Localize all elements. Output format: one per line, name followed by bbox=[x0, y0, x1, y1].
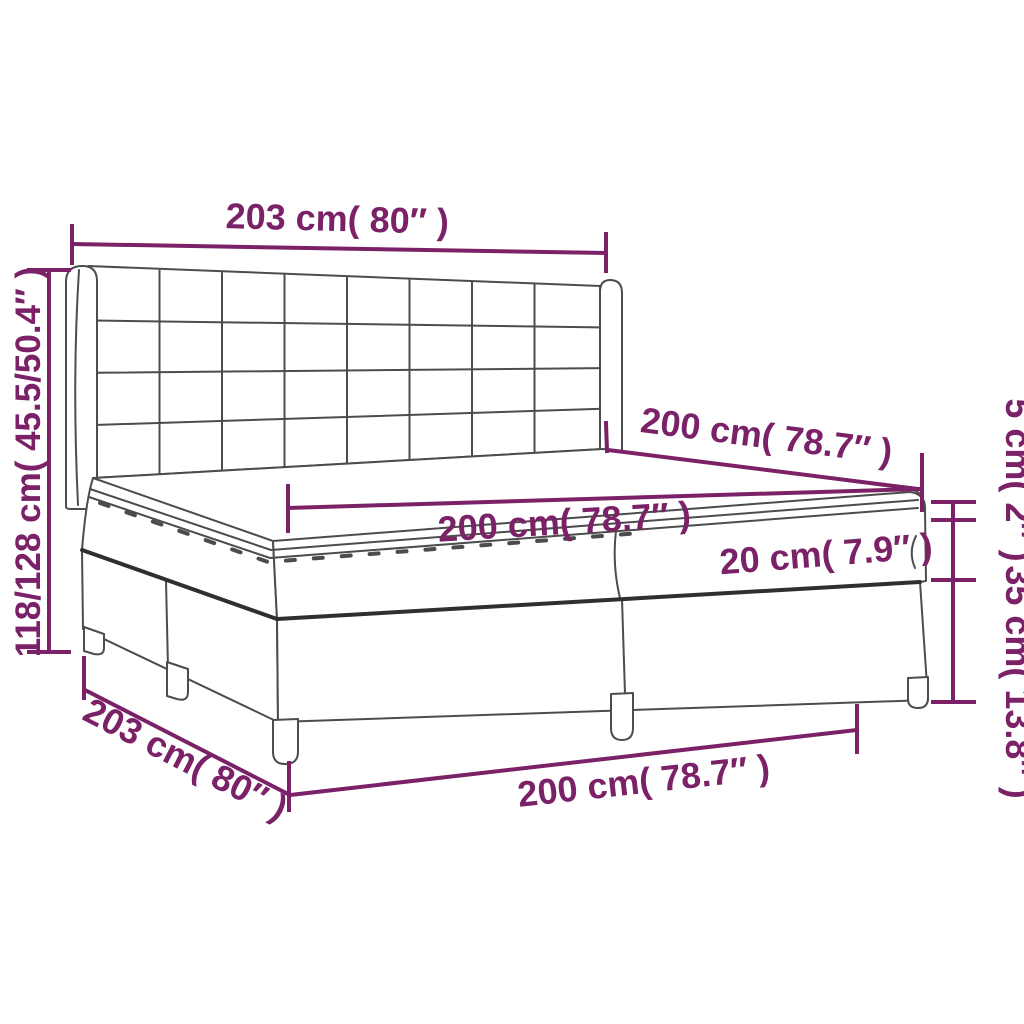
dim-right-bracket bbox=[933, 502, 974, 702]
headboard-left-pillar bbox=[66, 266, 97, 509]
dimension-diagram: 203 cm( 80″ ) 118/128 cm( 45.5/50.4″ ) 2… bbox=[0, 0, 1024, 1024]
label-headboard-width: 203 cm( 80″ ) bbox=[225, 195, 449, 242]
leg-front-left bbox=[273, 719, 298, 764]
label-overall-height: 118/128 cm( 45.5/50.4″ ) bbox=[9, 267, 48, 657]
leg-mid-left bbox=[167, 662, 188, 700]
label-frame-width: 200 cm( 78.7″ ) bbox=[515, 746, 771, 815]
label-topper-height: 5 cm( 2″ ) bbox=[998, 398, 1024, 561]
label-box-height: 35 cm( 13.8″ ) bbox=[998, 565, 1024, 798]
headboard-right-pillar bbox=[600, 280, 622, 452]
bed-diagram-svg: 203 cm( 80″ ) 118/128 cm( 45.5/50.4″ ) 2… bbox=[0, 0, 1024, 1024]
leg-mid-front bbox=[611, 693, 633, 740]
leg-front-right bbox=[908, 677, 928, 708]
